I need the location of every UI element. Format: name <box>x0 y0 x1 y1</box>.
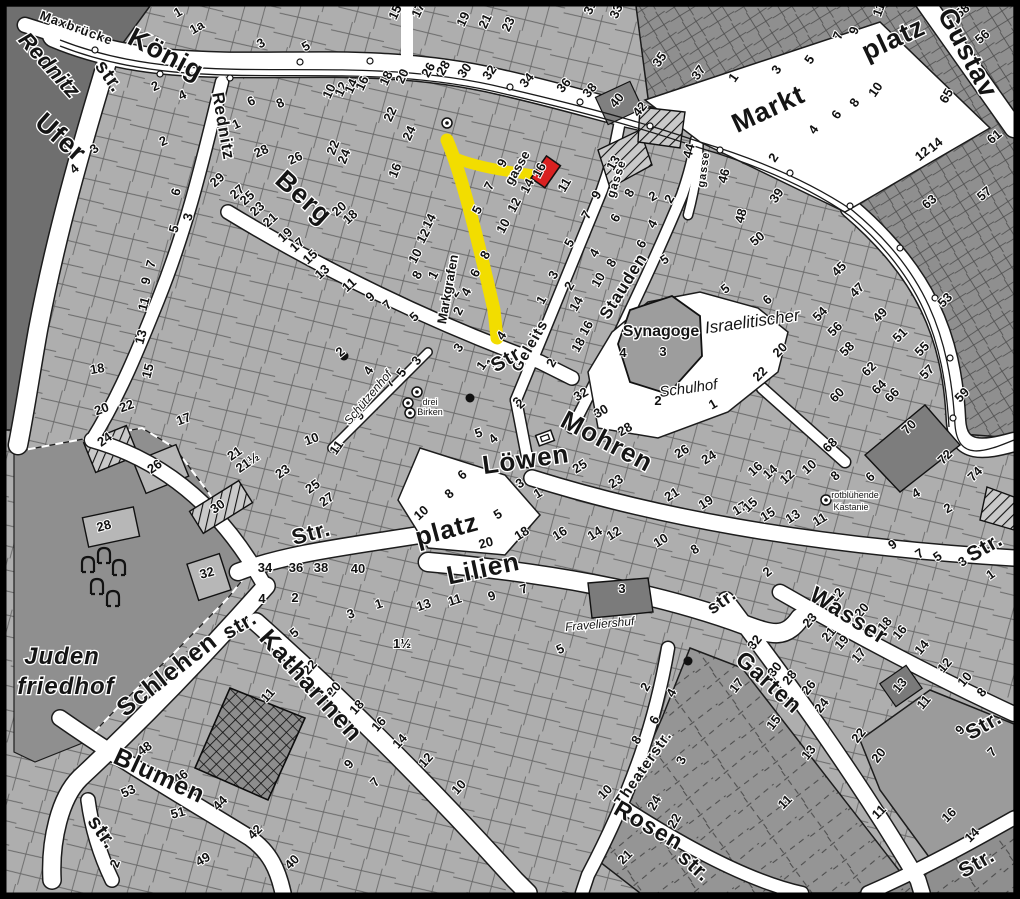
place-label: Birken <box>417 407 443 417</box>
place-label: Synagoge <box>623 323 700 340</box>
house-number: 3 <box>659 344 666 359</box>
house-number: 34 <box>258 560 273 575</box>
house-number: 4 <box>619 345 627 360</box>
house-number: 40 <box>351 561 365 576</box>
house-number: 38 <box>314 560 328 575</box>
house-number: 18 <box>89 360 106 377</box>
well-dot-icon <box>466 394 475 403</box>
historical-city-map: 1517192123313311a35246812826234101214161… <box>0 0 1020 899</box>
well-dot-icon <box>684 657 693 666</box>
tree-icon <box>403 398 413 408</box>
house-number: 2 <box>291 590 298 605</box>
tree-icon <box>442 118 452 128</box>
place-label: drei <box>422 397 437 407</box>
tree-icon <box>412 387 422 397</box>
place-label: Kastanie <box>833 502 868 512</box>
house-number: 36 <box>289 560 303 575</box>
house-number: 4 <box>258 591 266 606</box>
place-label: Juden <box>24 643 100 670</box>
tree-icon <box>405 408 415 418</box>
place-label: rotblühende <box>831 490 879 500</box>
tree-icon <box>821 495 831 505</box>
house-number: 1½ <box>393 636 411 651</box>
house-number: 3 <box>618 581 625 596</box>
place-label: friedhof <box>17 673 115 700</box>
city-map-canvas: 1517192123313311a35246812826234101214161… <box>0 0 1020 899</box>
